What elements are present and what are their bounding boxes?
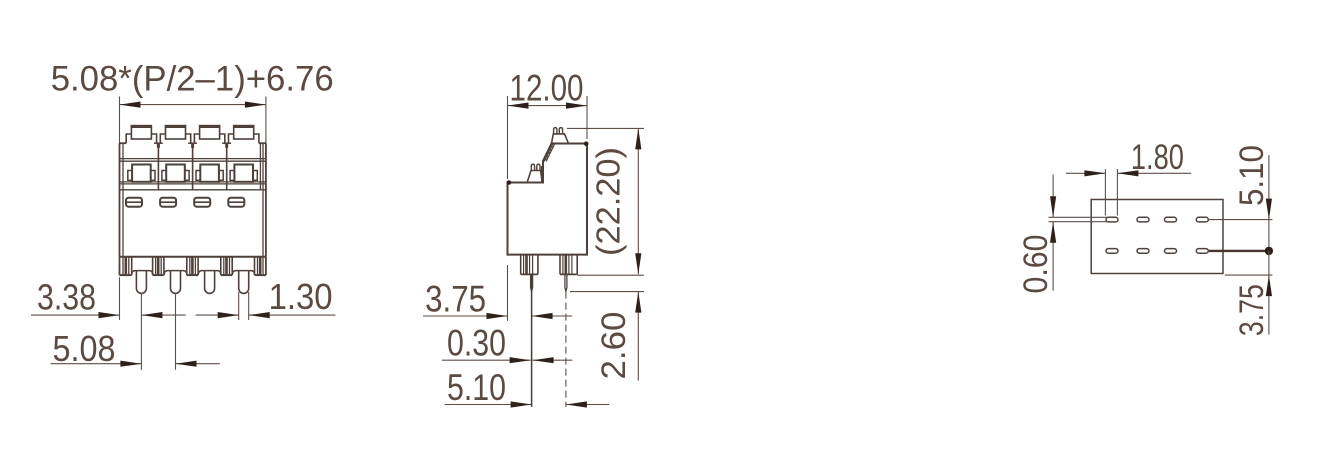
svg-text:3.75: 3.75 bbox=[425, 278, 486, 319]
svg-text:12.00: 12.00 bbox=[510, 66, 584, 108]
svg-text:1.30: 1.30 bbox=[269, 276, 333, 317]
svg-text:5.08*(P/2–1)+6.76: 5.08*(P/2–1)+6.76 bbox=[51, 60, 334, 99]
svg-text:2.60: 2.60 bbox=[595, 312, 633, 380]
svg-text:3.38: 3.38 bbox=[37, 276, 96, 317]
svg-text:5.10: 5.10 bbox=[447, 367, 506, 408]
svg-text:3.75: 3.75 bbox=[1233, 284, 1271, 336]
svg-text:(22.20): (22.20) bbox=[590, 147, 627, 256]
svg-text:0.60: 0.60 bbox=[1017, 235, 1055, 294]
svg-text:0.30: 0.30 bbox=[447, 323, 506, 364]
svg-text:5.10: 5.10 bbox=[1233, 145, 1271, 206]
svg-text:5.08: 5.08 bbox=[53, 328, 116, 369]
svg-text:1.80: 1.80 bbox=[1131, 137, 1184, 177]
